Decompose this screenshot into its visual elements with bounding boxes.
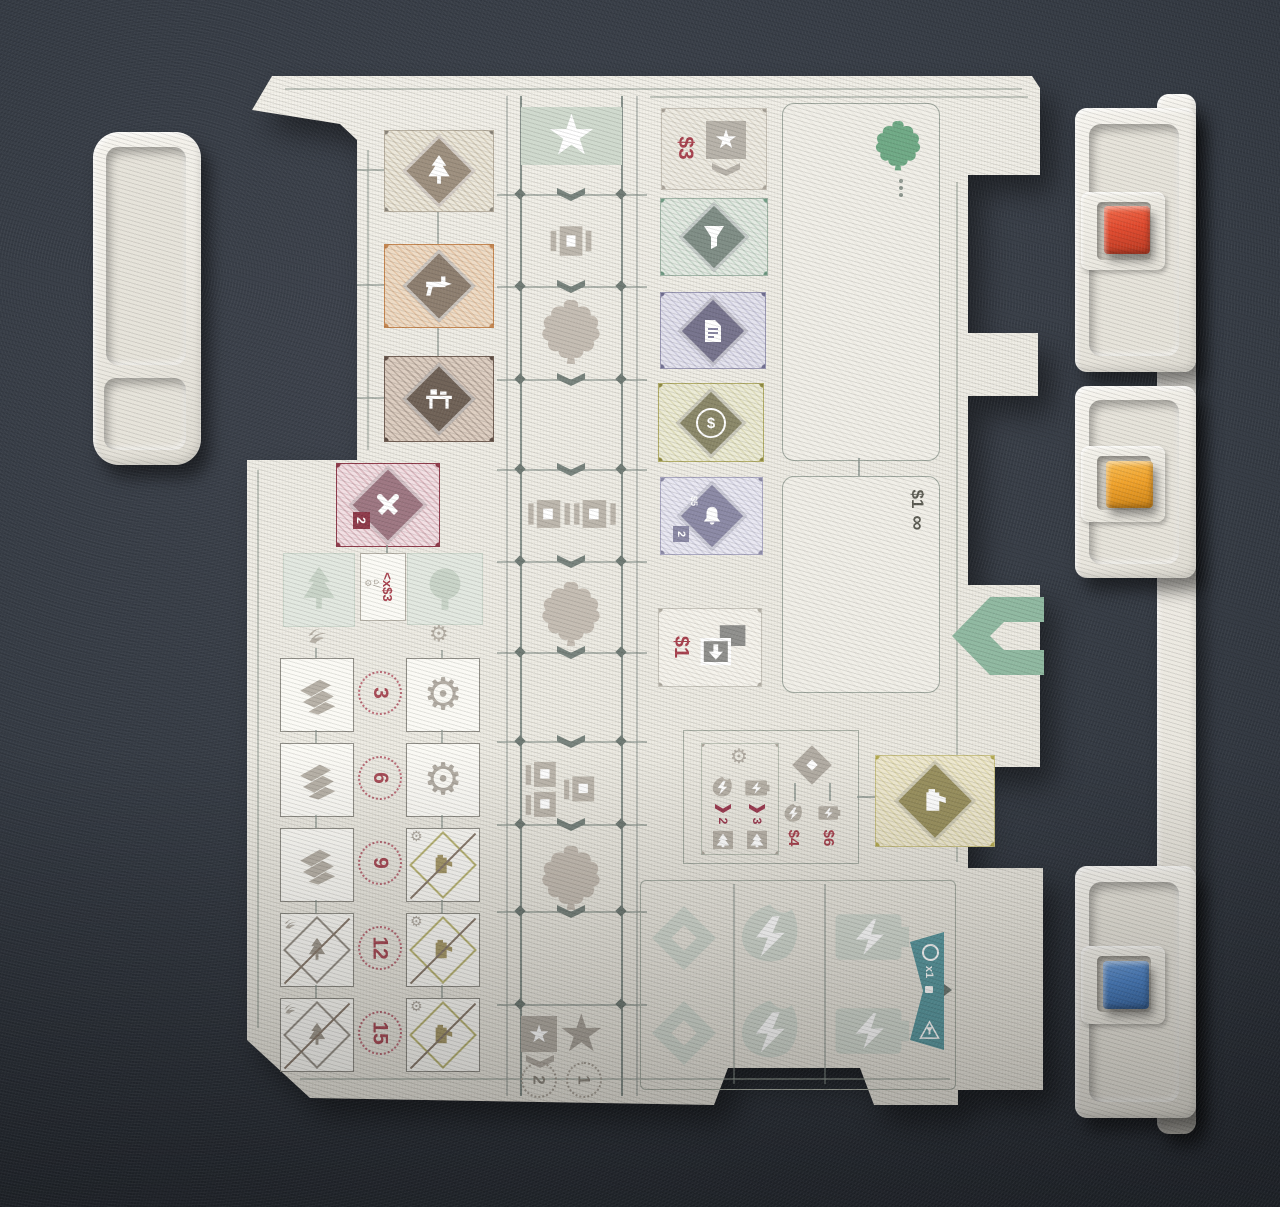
track-outer-line-right	[636, 96, 638, 1096]
ellipsis-dots-icon	[899, 176, 903, 200]
red-chevron-icon	[749, 804, 765, 813]
rail-slot-top	[1075, 108, 1196, 372]
blue-cube	[1103, 961, 1149, 1009]
green-arrow-icon	[952, 597, 1044, 675]
ghost-leaf-energy-icon	[737, 900, 801, 968]
star-icon: ★	[546, 108, 596, 164]
discard-price-label: $1	[665, 631, 697, 663]
workshop-square-locked	[280, 913, 354, 987]
gear-icon: ⚙	[410, 915, 423, 929]
board-inner-outline-left-upper	[367, 150, 369, 450]
card-slot-top	[782, 103, 940, 461]
bonus-value: 15	[368, 1021, 392, 1044]
leaf-energy-icon	[710, 776, 734, 798]
document-tile	[660, 292, 766, 369]
crossed-tools-icon	[375, 492, 401, 518]
bonus-value: 6	[368, 772, 392, 784]
banner-pointer-icon	[944, 984, 952, 996]
connector-line	[441, 900, 443, 913]
bonus-wreath: 15	[358, 1011, 402, 1055]
infinity-label: ∞	[905, 509, 929, 537]
coin-icon: $	[696, 408, 726, 438]
bonus-wreath: 9	[358, 841, 402, 885]
bonus-value: 9	[368, 857, 392, 869]
board-inner-outline-top2	[650, 96, 1028, 98]
box-arrow-icon	[699, 623, 747, 669]
convert-count: 2	[716, 814, 730, 828]
connector-line	[794, 783, 796, 801]
green-gnome-icon	[867, 118, 929, 172]
bell-icon	[701, 505, 723, 527]
funnel-flag-icon	[919, 1020, 940, 1040]
kiln-icon	[921, 788, 949, 814]
workshop-square-locked: ⚙	[406, 998, 480, 1072]
pine-tree-icon	[300, 565, 338, 615]
gnome-silhouette-icon	[525, 578, 617, 648]
gear-icon: ⚙	[410, 830, 423, 844]
rail-slot-middle	[1075, 386, 1196, 578]
kiln-tile	[875, 755, 995, 847]
drill-icon	[424, 273, 454, 299]
ghost-leaf-energy-icon	[737, 996, 801, 1064]
wood-shavings-icon	[283, 1001, 299, 1017]
connector-line	[315, 730, 317, 743]
workbench-tile	[384, 356, 494, 442]
track-outer-line-left	[506, 96, 508, 1096]
convert-price: $4	[779, 826, 809, 850]
gear-icon: ⚙	[730, 746, 748, 766]
workshop-square-locked: ⚙	[406, 913, 480, 987]
gnome-silhouette-icon	[525, 296, 617, 366]
gear-icon: ⚙	[410, 1000, 423, 1014]
convert-price: $6	[814, 826, 844, 850]
connector-line	[315, 985, 317, 998]
craft-badge-value: 2	[355, 517, 369, 524]
workshop-square-wood	[280, 743, 354, 817]
pine-tree-tile	[384, 130, 494, 212]
bonus-wreath: 3	[358, 671, 402, 715]
wood-pile-icon	[294, 759, 340, 801]
battery-energy-icon	[817, 804, 841, 822]
ghost-battery-icon	[833, 1000, 909, 1062]
domino-x2-icon	[528, 498, 616, 530]
connector-line	[829, 783, 831, 801]
pine-tree-icon	[426, 154, 452, 188]
workshop-square-wood	[280, 828, 354, 902]
gear-icon: ⚙	[423, 758, 462, 802]
workshop-square-locked	[280, 998, 354, 1072]
tree-card-icon	[745, 830, 769, 850]
connector-line	[437, 326, 439, 356]
connector-line	[357, 169, 384, 171]
bonus-wreath: 6	[358, 756, 402, 800]
ghost-diamond-icon	[652, 903, 716, 973]
connector-line	[441, 650, 443, 658]
wood-shavings-icon	[283, 916, 299, 932]
connector-line	[315, 815, 317, 828]
star-icon: ★	[528, 1022, 550, 1046]
circle-icon	[922, 944, 939, 961]
wood-pile-icon	[294, 674, 340, 716]
workshop-square-locked: ⚙	[406, 828, 480, 902]
goods-divider	[824, 884, 826, 1084]
bell-badge-value: 2	[675, 531, 687, 537]
market-price-label: $3	[668, 131, 702, 165]
orange-cube	[1106, 461, 1153, 508]
bonus-wreath: 12	[358, 926, 402, 970]
star-icon: ★	[714, 127, 737, 153]
gnome-silhouette-icon	[525, 842, 617, 912]
connector-line	[858, 458, 860, 476]
connector-line	[315, 648, 317, 658]
score-wreath-1: 1	[566, 1062, 602, 1098]
connector-line	[441, 730, 443, 743]
bush-tree-icon	[424, 565, 466, 613]
ghost-diamond-icon	[792, 745, 832, 785]
bell-tile: $5 2	[660, 477, 763, 555]
wood-shavings-icon	[306, 624, 330, 648]
star-icon: ★	[558, 1008, 605, 1060]
lock-icon	[925, 986, 933, 993]
workshop-square-wood	[280, 658, 354, 732]
gear-icon: ⚙	[429, 624, 449, 646]
leaf-energy-icon	[782, 803, 804, 823]
connector-line	[357, 284, 384, 286]
tray-recess-large	[106, 147, 186, 365]
upgrade-box: ⚙ 2 3	[701, 743, 779, 855]
bell-badge: 2	[673, 526, 689, 542]
connector-line	[441, 985, 443, 998]
board-inner-outline-left-lower	[257, 470, 259, 1028]
track-line-left	[520, 96, 522, 1096]
workshop-square-gear: ⚙	[406, 658, 480, 732]
domino-x1-icon	[548, 224, 594, 258]
pine-ghost-square	[283, 553, 355, 627]
score-wreath-2: 2	[521, 1062, 557, 1098]
connector-line	[441, 815, 443, 828]
rail-slot-bottom	[1075, 866, 1196, 1118]
card-slot-bottom: $1 ∞	[782, 476, 940, 693]
goods-divider	[733, 884, 735, 1084]
connector-line	[315, 900, 317, 913]
red-chevron-icon	[715, 804, 731, 813]
gear-icon: ⚙	[423, 673, 462, 717]
connector-line	[357, 397, 384, 399]
multiplier-label: x1	[919, 963, 939, 981]
board-inner-outline-top	[285, 88, 1022, 90]
track-line-right	[621, 96, 623, 1096]
bell-price-label: $5	[687, 494, 701, 508]
scene: ★ ★ 2 ★ 1 $3 ★	[0, 0, 1280, 1207]
bonus-value: 12	[368, 936, 392, 959]
coin-tile: $	[658, 383, 764, 462]
track-start-star-cell: ★	[521, 107, 622, 165]
sell-price-box: <x$3 ⌂/⚙	[360, 553, 406, 621]
workbench-icon	[424, 387, 454, 411]
convert-count: 3	[750, 814, 764, 828]
craft-badge: 2	[353, 512, 370, 529]
funnel-icon	[702, 224, 726, 250]
square-star-icon: ★	[521, 1016, 557, 1052]
sell-goods-icons: ⌂/⚙	[356, 579, 386, 595]
tree-card-icon	[711, 830, 735, 850]
market-price-tile: $3 ★	[661, 108, 767, 190]
connector-line	[437, 210, 439, 244]
connector-line	[386, 545, 388, 553]
dollar-glyph: $	[707, 414, 715, 431]
workshop-square-gear: ⚙	[406, 743, 480, 817]
conversion-panel: ⚙ 2 3 $4 $6	[683, 730, 859, 864]
funnel-tile	[660, 198, 768, 276]
wood-pile-icon	[294, 844, 340, 886]
domino-x4-icon	[524, 762, 600, 820]
red-cube	[1104, 206, 1150, 254]
ghost-diamond-icon	[652, 998, 716, 1068]
score-value: 2	[529, 1075, 549, 1084]
ghost-battery-icon	[833, 906, 909, 968]
craft-tile: 2	[336, 463, 440, 547]
drill-tile	[384, 244, 494, 328]
bush-ghost-square	[407, 553, 483, 625]
connector-line	[857, 796, 875, 798]
square-star-icon: ★	[706, 121, 746, 159]
discard-tile: $1	[658, 608, 762, 687]
document-icon	[702, 318, 724, 344]
score-value: 1	[574, 1075, 594, 1084]
chevron-down-icon	[712, 163, 740, 176]
bonus-value: 3	[368, 687, 392, 699]
diamond-hole	[806, 759, 817, 770]
tray-recess-small	[104, 378, 186, 450]
plastic-tray	[93, 132, 201, 465]
battery-energy-icon	[744, 778, 770, 798]
